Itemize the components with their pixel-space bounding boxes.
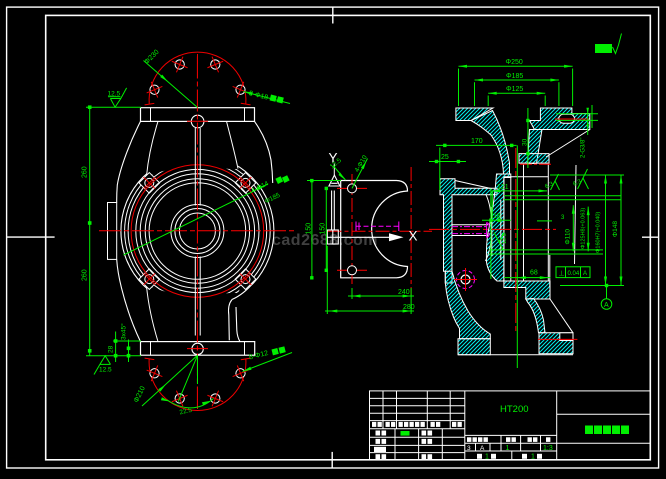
svg-text:Φ110: Φ110 [565, 229, 572, 245]
svg-text:A: A [583, 271, 587, 277]
svg-text:1:3: 1:3 [543, 445, 553, 452]
svg-text:170: 170 [471, 138, 483, 145]
svg-text:Φ125: Φ125 [506, 86, 523, 93]
svg-text:12.5: 12.5 [99, 367, 112, 374]
svg-text:A: A [604, 302, 609, 309]
svg-text:A: A [480, 445, 485, 452]
svg-text:Φ185: Φ185 [506, 73, 523, 80]
svg-text:260: 260 [82, 269, 89, 281]
svg-text:1: 1 [506, 445, 510, 452]
svg-text:Φ148: Φ148 [612, 221, 619, 237]
svg-text:280: 280 [403, 304, 415, 311]
svg-text:68: 68 [530, 269, 538, 276]
svg-text:3: 3 [467, 445, 471, 452]
svg-text:1: 1 [531, 454, 535, 461]
svg-text:Φ250: Φ250 [506, 59, 523, 66]
svg-text:12.5: 12.5 [108, 91, 121, 98]
svg-text:18: 18 [493, 213, 501, 220]
svg-text:Φ125H8(+0.063): Φ125H8(+0.063) [580, 208, 586, 249]
svg-text:HT200: HT200 [500, 404, 529, 415]
svg-text:25: 25 [441, 154, 449, 161]
svg-text:0.04: 0.04 [568, 271, 580, 277]
svg-text:X: X [409, 229, 418, 244]
svg-text:260: 260 [82, 166, 89, 178]
svg-text:3x45°: 3x45° [120, 323, 128, 340]
svg-text:⊥: ⊥ [559, 271, 565, 278]
svg-text:30: 30 [522, 138, 529, 146]
svg-text:Φ160H7(+0.040): Φ160H7(+0.040) [596, 212, 602, 253]
svg-text:121: 121 [497, 184, 509, 191]
svg-text:150: 150 [305, 223, 312, 235]
svg-text:28: 28 [108, 345, 115, 353]
svg-text:1: 1 [485, 454, 489, 461]
svg-text:150: 150 [320, 223, 327, 235]
svg-text:240: 240 [398, 289, 410, 296]
svg-text:2-G3/8": 2-G3/8" [581, 138, 587, 158]
